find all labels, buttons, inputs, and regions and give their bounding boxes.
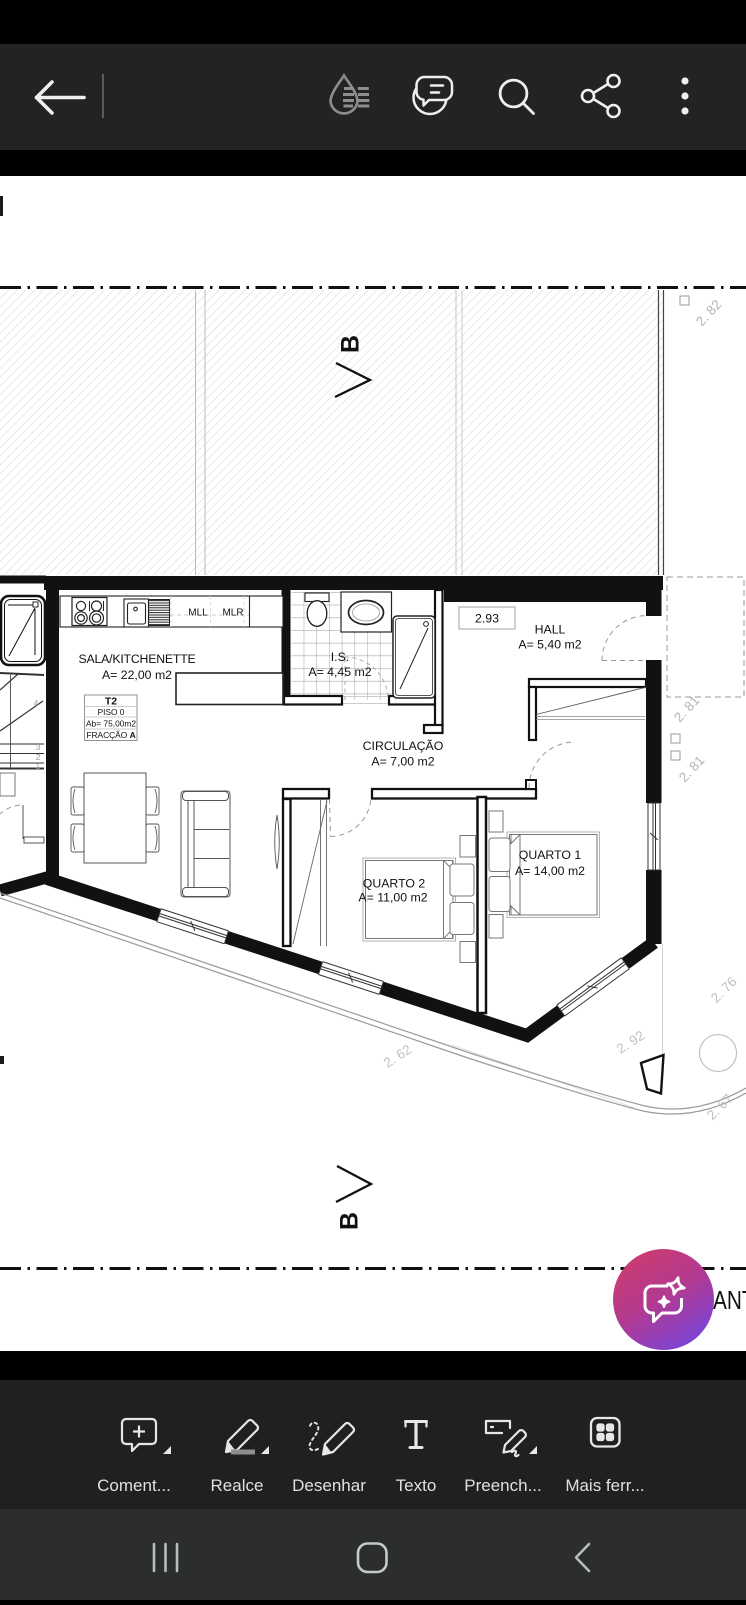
svg-text:A= 22,00 m2: A= 22,00 m2: [102, 668, 172, 682]
svg-text:B: B: [337, 335, 365, 353]
svg-text:CIRCULAÇÃO: CIRCULAÇÃO: [363, 739, 444, 753]
svg-text:Preench...: Preench...: [464, 1476, 542, 1495]
svg-text:A= 14,00 m2: A= 14,00 m2: [515, 864, 585, 878]
svg-text:QUARTO 2: QUARTO 2: [363, 877, 426, 891]
svg-text:FRACÇÃO A: FRACÇÃO A: [86, 730, 135, 740]
svg-text:QUARTO 1: QUARTO 1: [519, 848, 582, 862]
svg-text:A= 7,00 m2: A= 7,00 m2: [371, 755, 434, 769]
svg-text:MLR: MLR: [222, 608, 243, 619]
svg-text:MLL: MLL: [188, 608, 208, 619]
svg-text:1: 1: [36, 761, 41, 771]
svg-text:Desenhar: Desenhar: [292, 1476, 366, 1495]
svg-text:I.S.: I.S.: [331, 650, 349, 664]
svg-text:T2: T2: [105, 696, 117, 708]
svg-text:B: B: [336, 1212, 364, 1230]
svg-text:Coment...: Coment...: [97, 1476, 171, 1495]
svg-text:Ab= 75,00m2: Ab= 75,00m2: [86, 719, 136, 729]
svg-text:4: 4: [34, 699, 39, 708]
svg-text:PISO 0: PISO 0: [98, 707, 125, 717]
svg-text:SALA/KITCHENETTE: SALA/KITCHENETTE: [78, 652, 195, 666]
svg-text:2.93: 2.93: [475, 612, 499, 626]
svg-text:Realce: Realce: [211, 1476, 264, 1495]
svg-text:Texto: Texto: [396, 1476, 437, 1495]
svg-text:A= 4,45 m2: A= 4,45 m2: [308, 665, 371, 679]
svg-text:ANTA: ANTA: [713, 1285, 746, 1315]
svg-text:HALL: HALL: [535, 623, 566, 637]
svg-text:3: 3: [36, 742, 41, 752]
svg-text:A= 11,00 m2: A= 11,00 m2: [358, 891, 427, 905]
svg-text:A= 5,40 m2: A= 5,40 m2: [518, 638, 581, 652]
svg-text:Mais ferr...: Mais ferr...: [565, 1476, 644, 1495]
